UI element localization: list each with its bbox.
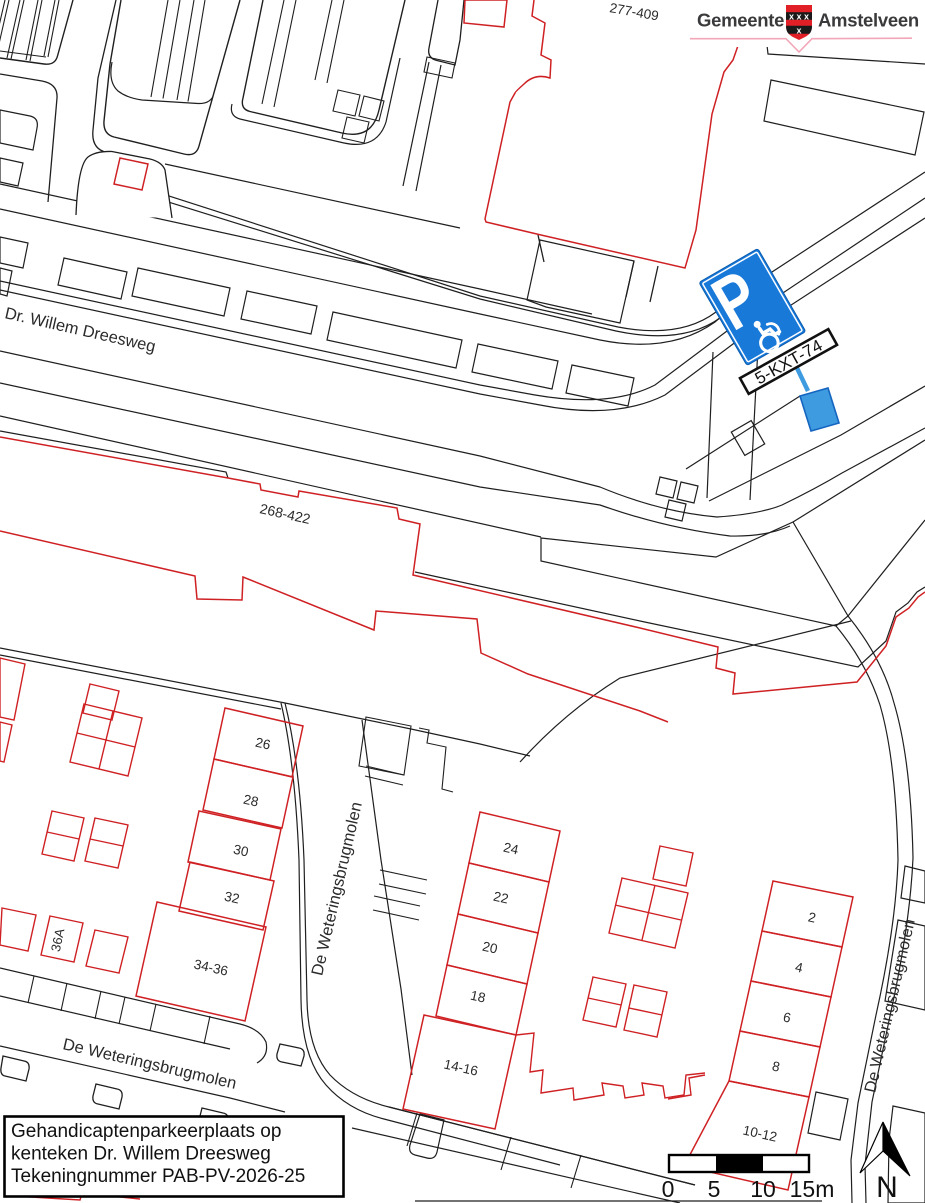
svg-text:10: 10	[750, 1176, 776, 1202]
svg-text:x: x	[796, 26, 801, 36]
svg-text:Gehandicaptenparkeerplaats op: Gehandicaptenparkeerplaats op	[11, 1121, 281, 1142]
svg-text:x: x	[804, 11, 809, 21]
svg-text:28: 28	[242, 792, 260, 810]
svg-text:22: 22	[492, 889, 510, 907]
svg-text:26: 26	[254, 735, 272, 753]
svg-text:30: 30	[232, 842, 250, 860]
svg-text:18: 18	[469, 988, 487, 1006]
svg-text:20: 20	[481, 939, 499, 957]
svg-text:Amstelveen: Amstelveen	[818, 10, 919, 31]
svg-text:32: 32	[223, 889, 241, 907]
svg-text:Tekeningnummer PAB-PV-2026-25: Tekeningnummer PAB-PV-2026-25	[11, 1166, 305, 1187]
svg-text:kenteken Dr. Willem Dreesweg: kenteken Dr. Willem Dreesweg	[11, 1144, 271, 1165]
svg-text:N: N	[876, 1171, 898, 1203]
svg-text:x: x	[796, 11, 801, 21]
svg-text:5: 5	[708, 1176, 721, 1202]
svg-text:15m: 15m	[790, 1176, 835, 1202]
svg-text:Gemeente: Gemeente	[697, 10, 784, 31]
svg-text:x: x	[789, 11, 794, 21]
svg-text:0: 0	[662, 1176, 675, 1202]
